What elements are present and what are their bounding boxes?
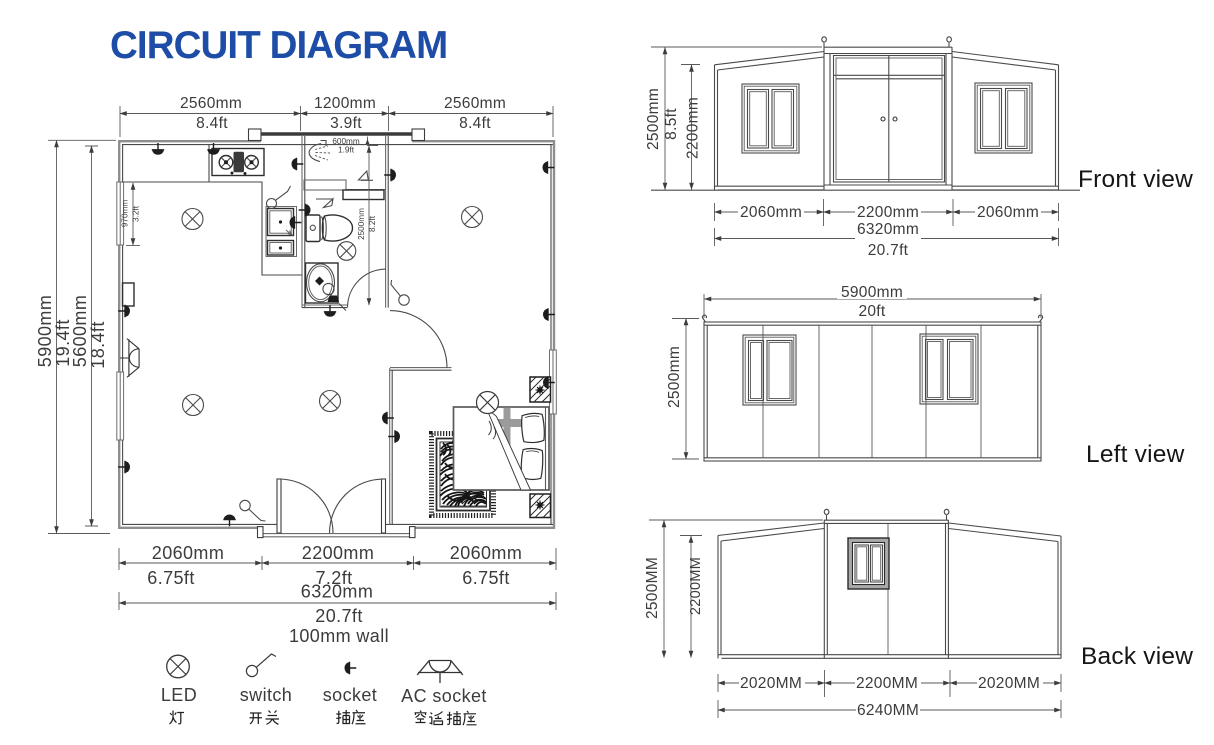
svg-text:6320mm: 6320mm (857, 221, 919, 238)
svg-text:Back view: Back view (1081, 643, 1193, 670)
svg-text:AC socket: AC socket (401, 686, 487, 706)
svg-text:1200mm: 1200mm (314, 95, 376, 112)
svg-text:20.7ft: 20.7ft (315, 606, 362, 626)
svg-text:2500MM: 2500MM (644, 557, 661, 619)
svg-text:LED: LED (161, 685, 197, 705)
svg-text:18.4ft: 18.4ft (88, 321, 108, 368)
svg-text:2200mm: 2200mm (685, 97, 702, 159)
svg-text:6320mm: 6320mm (301, 582, 373, 602)
svg-text:socket: socket (323, 685, 377, 705)
svg-text:8.5ft: 8.5ft (663, 108, 680, 140)
svg-text:6.75ft: 6.75ft (147, 568, 194, 588)
svg-text:5900mm: 5900mm (35, 295, 55, 367)
svg-text:6.75ft: 6.75ft (462, 568, 509, 588)
svg-text:20.7ft: 20.7ft (868, 242, 909, 259)
svg-text:2060mm: 2060mm (152, 543, 224, 563)
svg-text:100mm wall: 100mm wall (289, 626, 389, 646)
svg-text:8.4ft: 8.4ft (459, 115, 491, 132)
svg-text:6240MM: 6240MM (857, 702, 919, 719)
svg-text:CIRCUIT DIAGRAM: CIRCUIT DIAGRAM (110, 24, 447, 67)
svg-text:2500mm: 2500mm (645, 88, 662, 150)
svg-text:Front view: Front view (1078, 166, 1193, 193)
svg-text:2200MM: 2200MM (856, 675, 918, 692)
svg-text:2060mm: 2060mm (740, 204, 802, 221)
svg-text:5900mm: 5900mm (841, 284, 903, 301)
svg-text:2560mm: 2560mm (180, 95, 242, 112)
svg-text:2020MM: 2020MM (978, 675, 1040, 692)
svg-text:2500mm: 2500mm (357, 208, 366, 240)
svg-text:2020MM: 2020MM (740, 675, 802, 692)
svg-text:20ft: 20ft (858, 303, 885, 320)
svg-text:2200MM: 2200MM (688, 557, 704, 615)
svg-text:switch: switch (240, 685, 292, 705)
svg-text:2200mm: 2200mm (857, 204, 919, 221)
svg-text:2060mm: 2060mm (450, 543, 522, 563)
svg-text:2200mm: 2200mm (302, 543, 374, 563)
svg-text:2500mm: 2500mm (666, 346, 683, 408)
svg-text:1.9ft: 1.9ft (338, 146, 355, 155)
svg-text:3.9ft: 3.9ft (330, 115, 362, 132)
svg-text:2560mm: 2560mm (444, 95, 506, 112)
svg-text:8.4ft: 8.4ft (196, 115, 228, 132)
svg-text:3.2ft: 3.2ft (132, 205, 141, 222)
svg-text:8.2ft: 8.2ft (368, 215, 377, 232)
svg-text:Left view: Left view (1086, 441, 1185, 468)
svg-text:5600mm: 5600mm (70, 295, 90, 367)
svg-text:2060mm: 2060mm (977, 204, 1039, 221)
svg-text:970mm: 970mm (121, 200, 130, 227)
